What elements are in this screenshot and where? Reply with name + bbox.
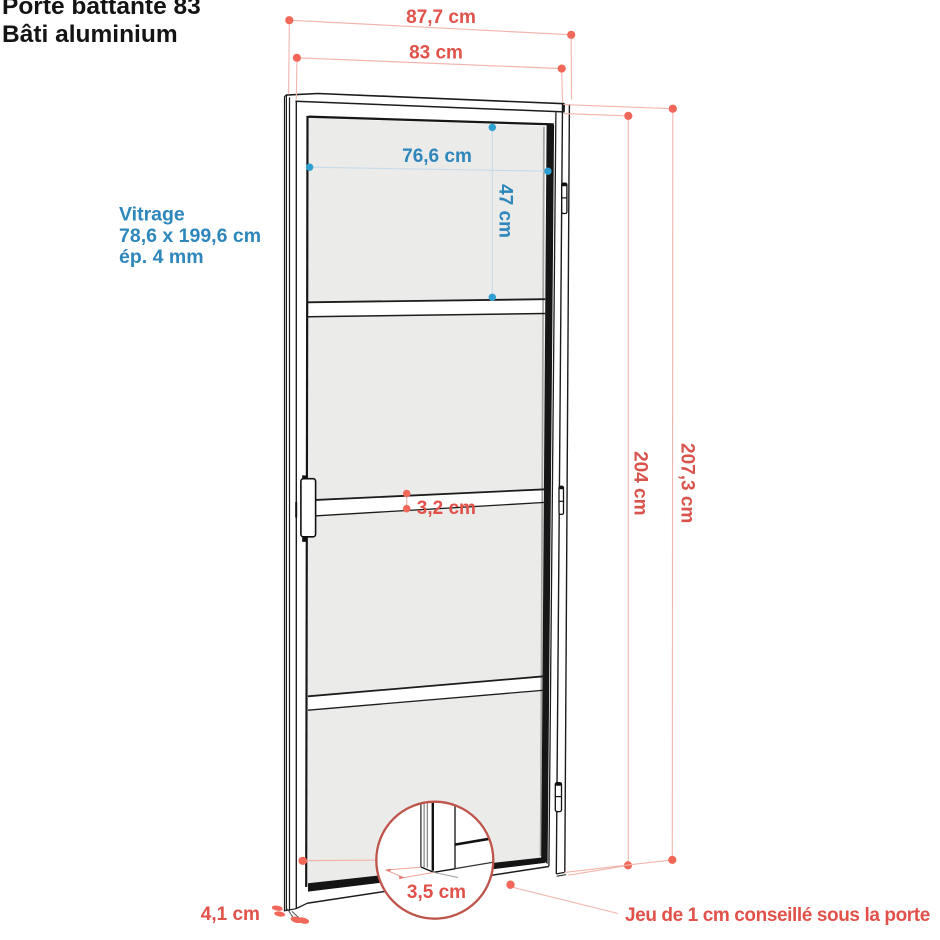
svg-text:83 cm: 83 cm	[409, 43, 463, 64]
svg-text:3,2 cm: 3,2 cm	[417, 498, 476, 519]
svg-text:Bâti aluminium: Bâti aluminium	[2, 21, 178, 48]
svg-text:204 cm: 204 cm	[630, 451, 651, 515]
svg-text:Jeu de 1 cm conseillé sous la: Jeu de 1 cm conseillé sous la porte	[625, 905, 930, 926]
svg-text:Porte battante 83: Porte battante 83	[2, 0, 201, 20]
svg-text:ép. 4 mm: ép. 4 mm	[119, 246, 204, 268]
svg-text:87,7 cm: 87,7 cm	[406, 7, 476, 28]
svg-text:76,6 cm: 76,6 cm	[402, 146, 472, 167]
svg-text:207,3 cm: 207,3 cm	[676, 443, 697, 523]
svg-text:47 cm: 47 cm	[495, 184, 516, 238]
svg-text:4,1 cm: 4,1 cm	[201, 904, 260, 925]
svg-text:3,5 cm: 3,5 cm	[407, 882, 466, 903]
svg-text:78,6 x 199,6 cm: 78,6 x 199,6 cm	[119, 225, 261, 247]
svg-text:Vitrage: Vitrage	[119, 204, 185, 226]
